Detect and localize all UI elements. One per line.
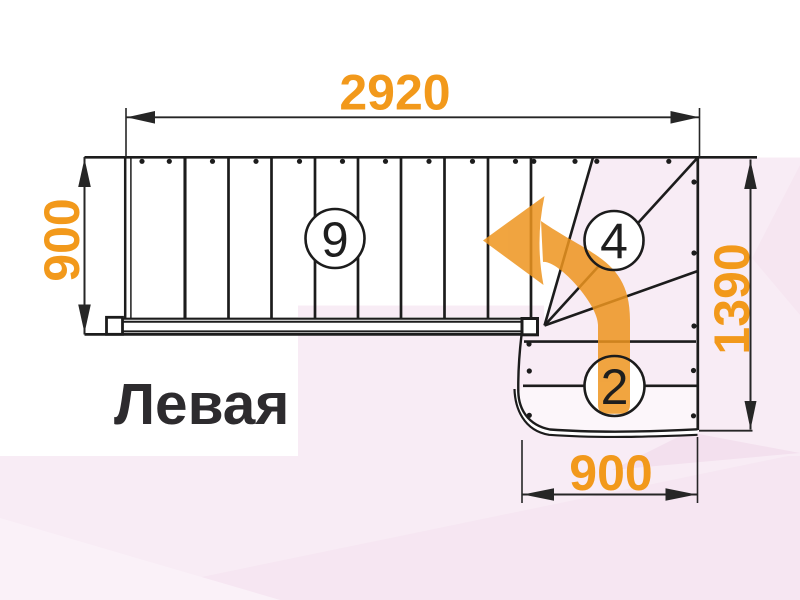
svg-text:900: 900 (34, 198, 90, 281)
svg-text:9: 9 (321, 213, 348, 267)
svg-text:4: 4 (600, 214, 628, 270)
svg-text:2: 2 (601, 359, 629, 415)
svg-text:2920: 2920 (339, 65, 450, 121)
svg-text:Левая: Левая (114, 372, 289, 437)
svg-text:1390: 1390 (704, 243, 760, 354)
svg-text:900: 900 (569, 445, 652, 501)
